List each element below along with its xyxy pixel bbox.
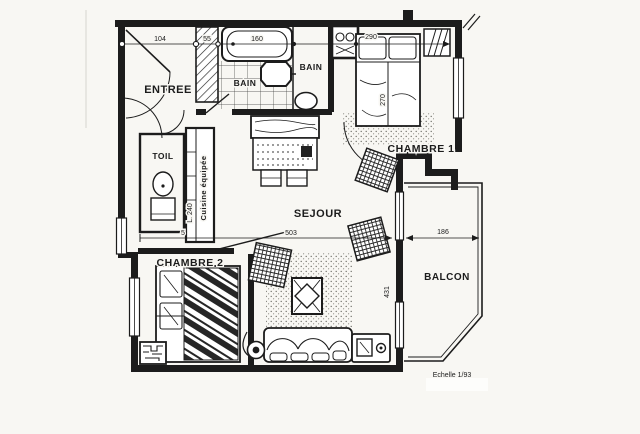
scale-note: Echelle 1/93 — [433, 372, 472, 379]
dim-sejour-depth: 431 — [384, 286, 391, 298]
toilet-door-arc — [160, 110, 184, 134]
armchair-3 — [248, 243, 291, 288]
dim-baignoire: 160 — [251, 36, 263, 43]
dim-marker — [354, 42, 357, 45]
washer-unit — [332, 26, 358, 58]
dim-marker — [193, 41, 198, 46]
room-label-balcon: BALCON — [424, 272, 470, 283]
dim-arrow — [406, 235, 413, 241]
room-label-entree: ENTREE — [144, 84, 192, 96]
dim-entree-width: 104 — [154, 36, 166, 43]
room-label-chambre1: CHAMBRE 1 — [388, 143, 455, 155]
beds-chambre2 — [156, 266, 240, 362]
floor-plan-svg: ENTREE BAIN BAIN TOIL CHAMBRE 1 CHAMBRE … — [0, 0, 640, 434]
dim-chambre1-depth: 270 — [380, 94, 387, 106]
party-wall-hatch — [463, 14, 480, 30]
hatch-line — [468, 16, 480, 30]
dim-cuisine-length: L. 240 — [187, 203, 194, 223]
dim-arrow — [385, 235, 392, 241]
dim-marker — [119, 41, 124, 46]
balcony-door — [396, 192, 404, 240]
dim-marker — [216, 42, 220, 46]
hatch-line — [463, 14, 475, 28]
room-label-chambre2: CHAMBRE 2 — [157, 257, 224, 269]
sofa — [264, 328, 352, 362]
chambre2-furniture — [140, 266, 240, 364]
dim-marker — [292, 42, 295, 45]
toilet — [151, 172, 175, 220]
kitchen-table — [251, 116, 319, 138]
window-chambre1 — [454, 58, 464, 118]
scan-patch — [426, 378, 488, 391]
chambre1-furniture — [332, 26, 450, 192]
stools — [261, 170, 307, 186]
window-chambre2 — [130, 278, 140, 336]
desk-item — [301, 146, 312, 157]
room-label-bain-right: BAIN — [300, 62, 323, 72]
nightstand — [140, 342, 166, 364]
coffee-table — [292, 278, 322, 314]
desk — [253, 138, 317, 170]
room-label-toil: TOIL — [152, 151, 173, 161]
room-label-sejour: SEJOUR — [294, 208, 342, 220]
window-left-upper — [117, 218, 127, 254]
dim-chambre1-width: 290 — [365, 34, 377, 41]
bed-chambre1 — [356, 34, 420, 126]
tv-unit — [352, 334, 390, 362]
dim-balcon-width: 186 — [437, 229, 449, 236]
armchair-2 — [348, 217, 390, 261]
label-cuisine: Cuisine équipée — [199, 155, 208, 220]
window-sejour — [396, 302, 404, 348]
dim-sejour-width: 503 — [285, 230, 297, 237]
dim-cuisine-clearance: 5 — [181, 230, 185, 237]
dim-placard-width: 55 — [203, 36, 211, 43]
floor-plan: ENTREE BAIN BAIN TOIL CHAMBRE 1 CHAMBRE … — [0, 0, 640, 434]
toilet-room — [140, 134, 184, 232]
room-label-bain-left: BAIN — [234, 78, 257, 88]
